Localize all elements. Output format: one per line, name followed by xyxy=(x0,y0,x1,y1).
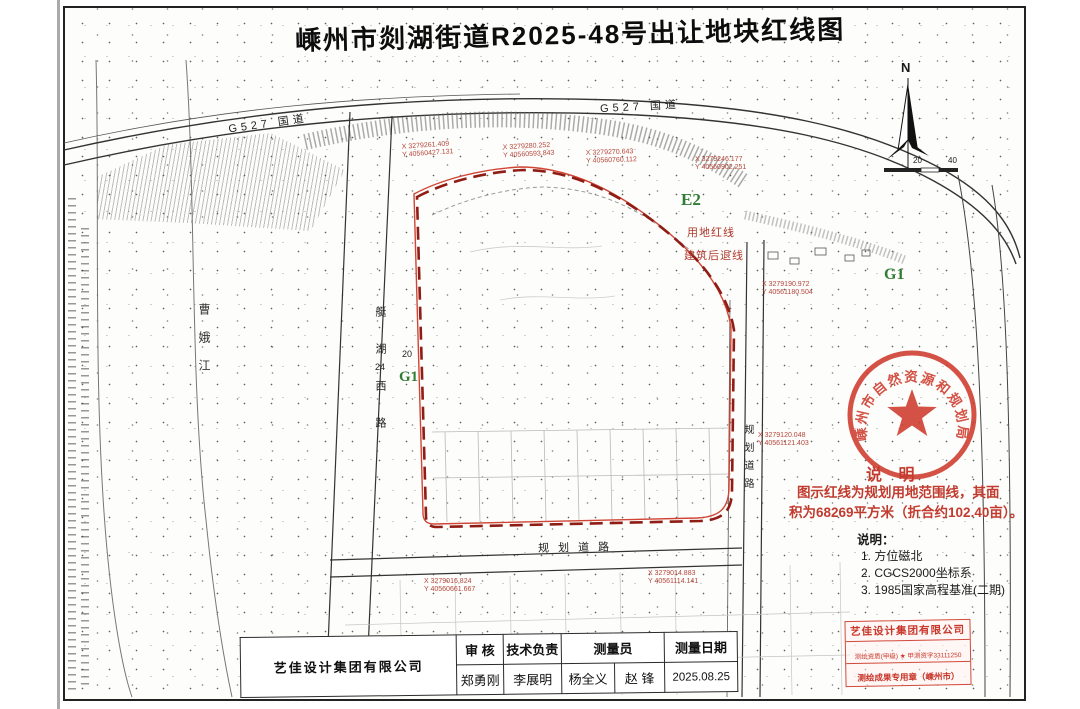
coord-x: X 3279120.048 xyxy=(758,432,809,440)
company-name-cell: 艺佳设计集团有限公司 xyxy=(240,635,457,698)
seal-star-icon xyxy=(887,389,936,436)
north-arrow-icon xyxy=(886,78,929,168)
road-south-label: 规划道路 xyxy=(538,538,618,555)
road-width-20: 20 xyxy=(402,349,412,359)
zone-label-g1-west: G1 xyxy=(399,369,418,386)
col-header-surveyor: 测量员 xyxy=(561,632,664,663)
note-item-2: 2. CGCS2000坐标系 xyxy=(861,564,972,581)
col-header-date: 测量日期 xyxy=(664,631,737,662)
scanned-map-page: 嵊州市自然资源和规划局 嵊州市剡湖街道R2025-48号出让地块红线图 G527… xyxy=(0,0,1080,709)
col-header-review: 审 核 xyxy=(456,634,503,665)
zone-label-g1-east: G1 xyxy=(884,266,904,284)
coord-annotation: X 3279190.972 Y 40561180.504 xyxy=(762,281,813,297)
coord-annotation: X 3279016.824 Y 40560661.667 xyxy=(424,578,475,594)
col-header-tech: 技术负责 xyxy=(503,634,562,665)
road-west-label: 艇湖西路 xyxy=(372,306,388,454)
stamp-license: 测绘资质(甲级) ★ 甲测资字33111250 xyxy=(846,646,970,663)
road-width-24: 24 xyxy=(375,362,385,372)
notes-line1: 图示红线为规划用地范围线，其面 xyxy=(797,481,1000,501)
stamp-company: 艺佳设计集团有限公司 xyxy=(845,620,969,642)
note-item-3: 3. 1985国家高程基准(二期) xyxy=(861,581,1005,598)
red-line-label: 用地红线 xyxy=(687,224,735,240)
scale-bar xyxy=(884,168,958,172)
reviewer-name: 郑勇刚 xyxy=(457,664,504,695)
stamp-purpose: 测绘成果专用章（嵊州市） xyxy=(846,668,970,686)
coord-annotation: X 3279014.883 Y 40561114.141 xyxy=(648,570,698,586)
coord-y: Y 40560902.251 xyxy=(695,164,746,172)
coord-annotation: X 3279246.177 Y 40560902.251 xyxy=(695,156,746,172)
notes-line2: 积为68269平方米（折合约102.40亩）。 xyxy=(789,501,1023,521)
title-block: 艺佳设计集团有限公司 审 核 技术负责 测量员 测量日期 郑勇刚 李展明 杨全义… xyxy=(240,631,739,698)
note-item-1: 1. 方位磁北 xyxy=(861,547,922,564)
surveyor1-name: 杨全义 xyxy=(562,663,615,694)
road-east-label: 规划道路 xyxy=(740,424,755,496)
coord-x: X 3279016.824 xyxy=(424,578,475,586)
river-name-label: 曹娥江 xyxy=(196,303,213,387)
zone-label-e2: E2 xyxy=(681,190,701,210)
scale-label-40: 40 xyxy=(948,156,957,165)
setback-line-label: 建筑后退线 xyxy=(684,247,744,263)
coord-y: Y 40561121.403 xyxy=(758,440,809,448)
coord-x: X 3279246.177 xyxy=(695,156,746,164)
coord-annotation: X 3279270.643 Y 40560760.112 xyxy=(586,148,637,166)
north-label: N xyxy=(901,60,910,75)
coord-y: Y 40561180.504 xyxy=(762,289,813,297)
coord-y: Y 40560661.667 xyxy=(424,586,475,594)
coord-x: X 3279014.883 xyxy=(648,570,698,578)
notes-sub-heading: 说明： xyxy=(857,529,895,548)
tech-lead-name: 李展明 xyxy=(503,664,562,695)
official-seal: 嵊州市自然资源和规划局 xyxy=(850,353,974,477)
survey-date: 2025.08.25 xyxy=(665,661,738,692)
surveyor2-name: 赵 锋 xyxy=(614,662,665,693)
coord-y: Y 40561114.141 xyxy=(648,578,698,586)
coord-annotation: X 3279120.048 Y 40561121.403 xyxy=(758,432,809,448)
scale-label-20: 20 xyxy=(913,156,922,165)
map-graphics: 嵊州市自然资源和规划局 xyxy=(0,0,1080,709)
certification-stamp: 艺佳设计集团有限公司 测绘资质(甲级) ★ 甲测资字33111250 测绘成果专… xyxy=(844,619,971,687)
coord-annotation: X 3279280.252 Y 40560593.843 xyxy=(503,142,555,161)
coord-x: X 3279190.972 xyxy=(762,281,813,289)
